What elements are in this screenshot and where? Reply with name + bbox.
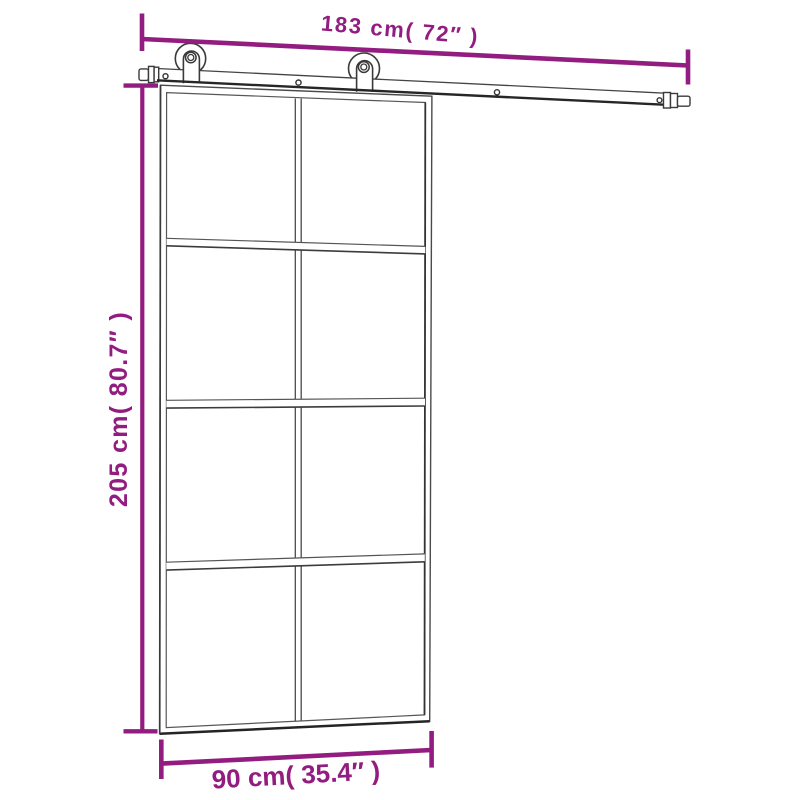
svg-text:205 cm( 80.7″ ): 205 cm( 80.7″ ) bbox=[105, 311, 133, 507]
